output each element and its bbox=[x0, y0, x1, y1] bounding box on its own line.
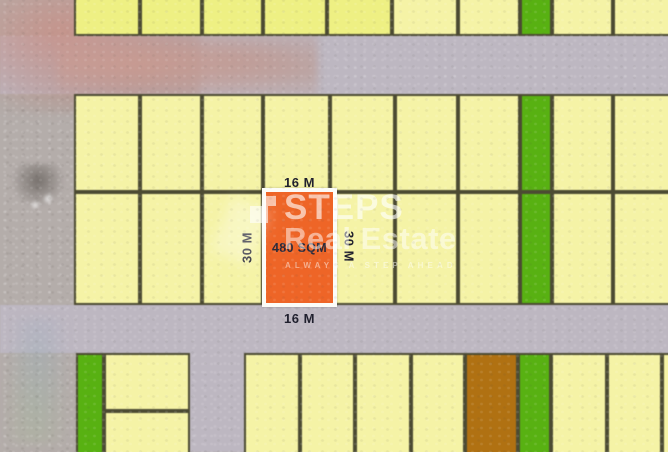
green-strip bbox=[76, 353, 104, 452]
dimension-label-left-depth: 30 M bbox=[240, 223, 255, 273]
plot-cell bbox=[392, 0, 458, 36]
plot-area-label: 480 SQM bbox=[272, 241, 327, 255]
plot-cell bbox=[613, 192, 668, 305]
dimension-label-bottom-width: 16 M bbox=[262, 311, 337, 326]
plot-cell bbox=[552, 94, 613, 192]
plot-cell bbox=[104, 411, 190, 452]
plot-cell bbox=[140, 192, 202, 305]
green-strip bbox=[520, 192, 552, 305]
plot-cell bbox=[244, 353, 300, 452]
plot-cell bbox=[613, 0, 668, 36]
plot-cell bbox=[662, 353, 668, 452]
plot-cell bbox=[355, 353, 411, 452]
plot-cell bbox=[74, 0, 140, 36]
plot-cell bbox=[140, 0, 202, 36]
plot-cell bbox=[458, 192, 520, 305]
plot-cell bbox=[411, 353, 465, 452]
green-strip bbox=[520, 0, 552, 36]
green-strip bbox=[518, 353, 551, 452]
road-horizontal-top bbox=[0, 36, 668, 94]
plot-cell bbox=[607, 353, 662, 452]
plot-cell bbox=[330, 94, 395, 192]
plot-cell bbox=[551, 353, 607, 452]
plot-cell bbox=[74, 94, 140, 192]
plot-cell bbox=[552, 0, 613, 36]
plot-cell bbox=[458, 0, 520, 36]
plot-cell bbox=[104, 353, 190, 411]
plot-cell bbox=[140, 94, 202, 192]
highlighted-plot: 480 SQM bbox=[262, 188, 337, 307]
plot-cell bbox=[327, 0, 392, 36]
plot-map-image: 480 SQM 16 M 16 M 30 M 30 M STEPS Real E… bbox=[0, 0, 668, 452]
plot-cell bbox=[458, 94, 520, 192]
plot-cell bbox=[552, 192, 613, 305]
plot-cell bbox=[74, 192, 140, 305]
dimension-label-top-width: 16 M bbox=[262, 175, 337, 190]
plot-cell bbox=[613, 94, 668, 192]
green-strip bbox=[520, 94, 552, 192]
brown-plot bbox=[465, 353, 518, 452]
plot-cell bbox=[330, 192, 395, 305]
plot-cell bbox=[263, 0, 327, 36]
plot-cell bbox=[202, 94, 263, 192]
plot-cell bbox=[395, 94, 458, 192]
road-vertical-bottom bbox=[190, 305, 244, 452]
plot-cell bbox=[395, 192, 458, 305]
dimension-label-right-depth: 30 M bbox=[342, 222, 357, 272]
plot-cell bbox=[300, 353, 355, 452]
plot-cell bbox=[202, 0, 263, 36]
